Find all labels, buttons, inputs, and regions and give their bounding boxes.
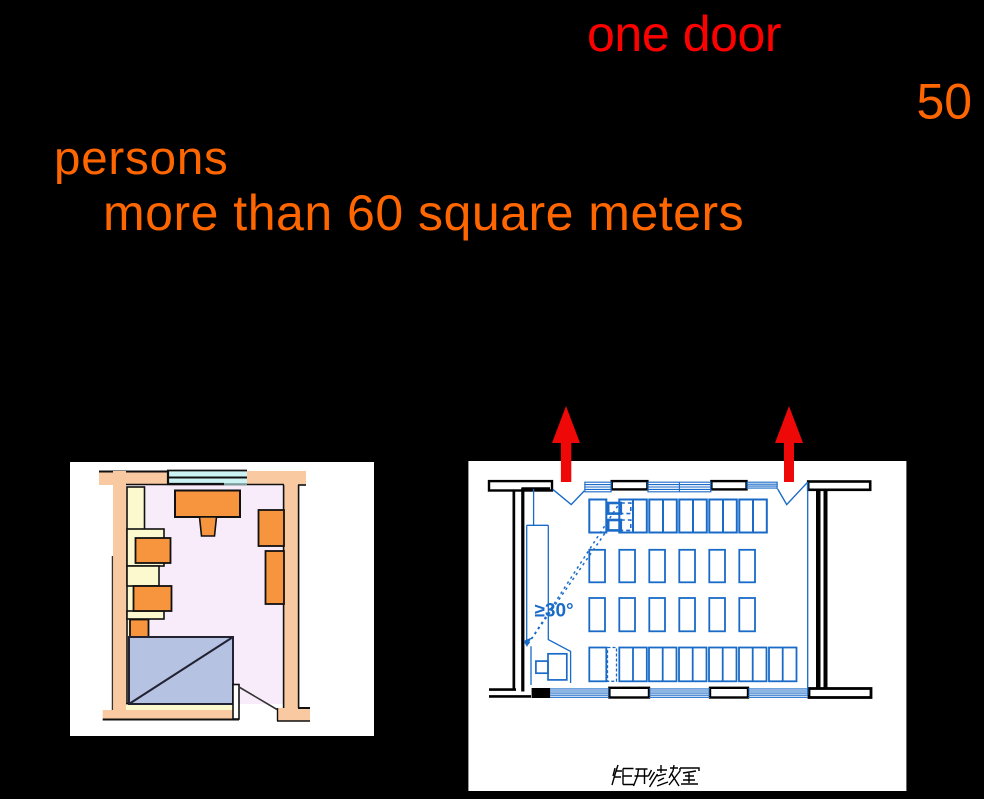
svg-text:one door: one door: [587, 6, 781, 62]
svg-text:more than 60 square meters: more than 60 square meters: [103, 185, 744, 241]
svg-text:persons: persons: [54, 132, 229, 185]
svg-text:50: 50: [917, 73, 973, 129]
svg-text:≥30°: ≥30°: [535, 601, 574, 622]
